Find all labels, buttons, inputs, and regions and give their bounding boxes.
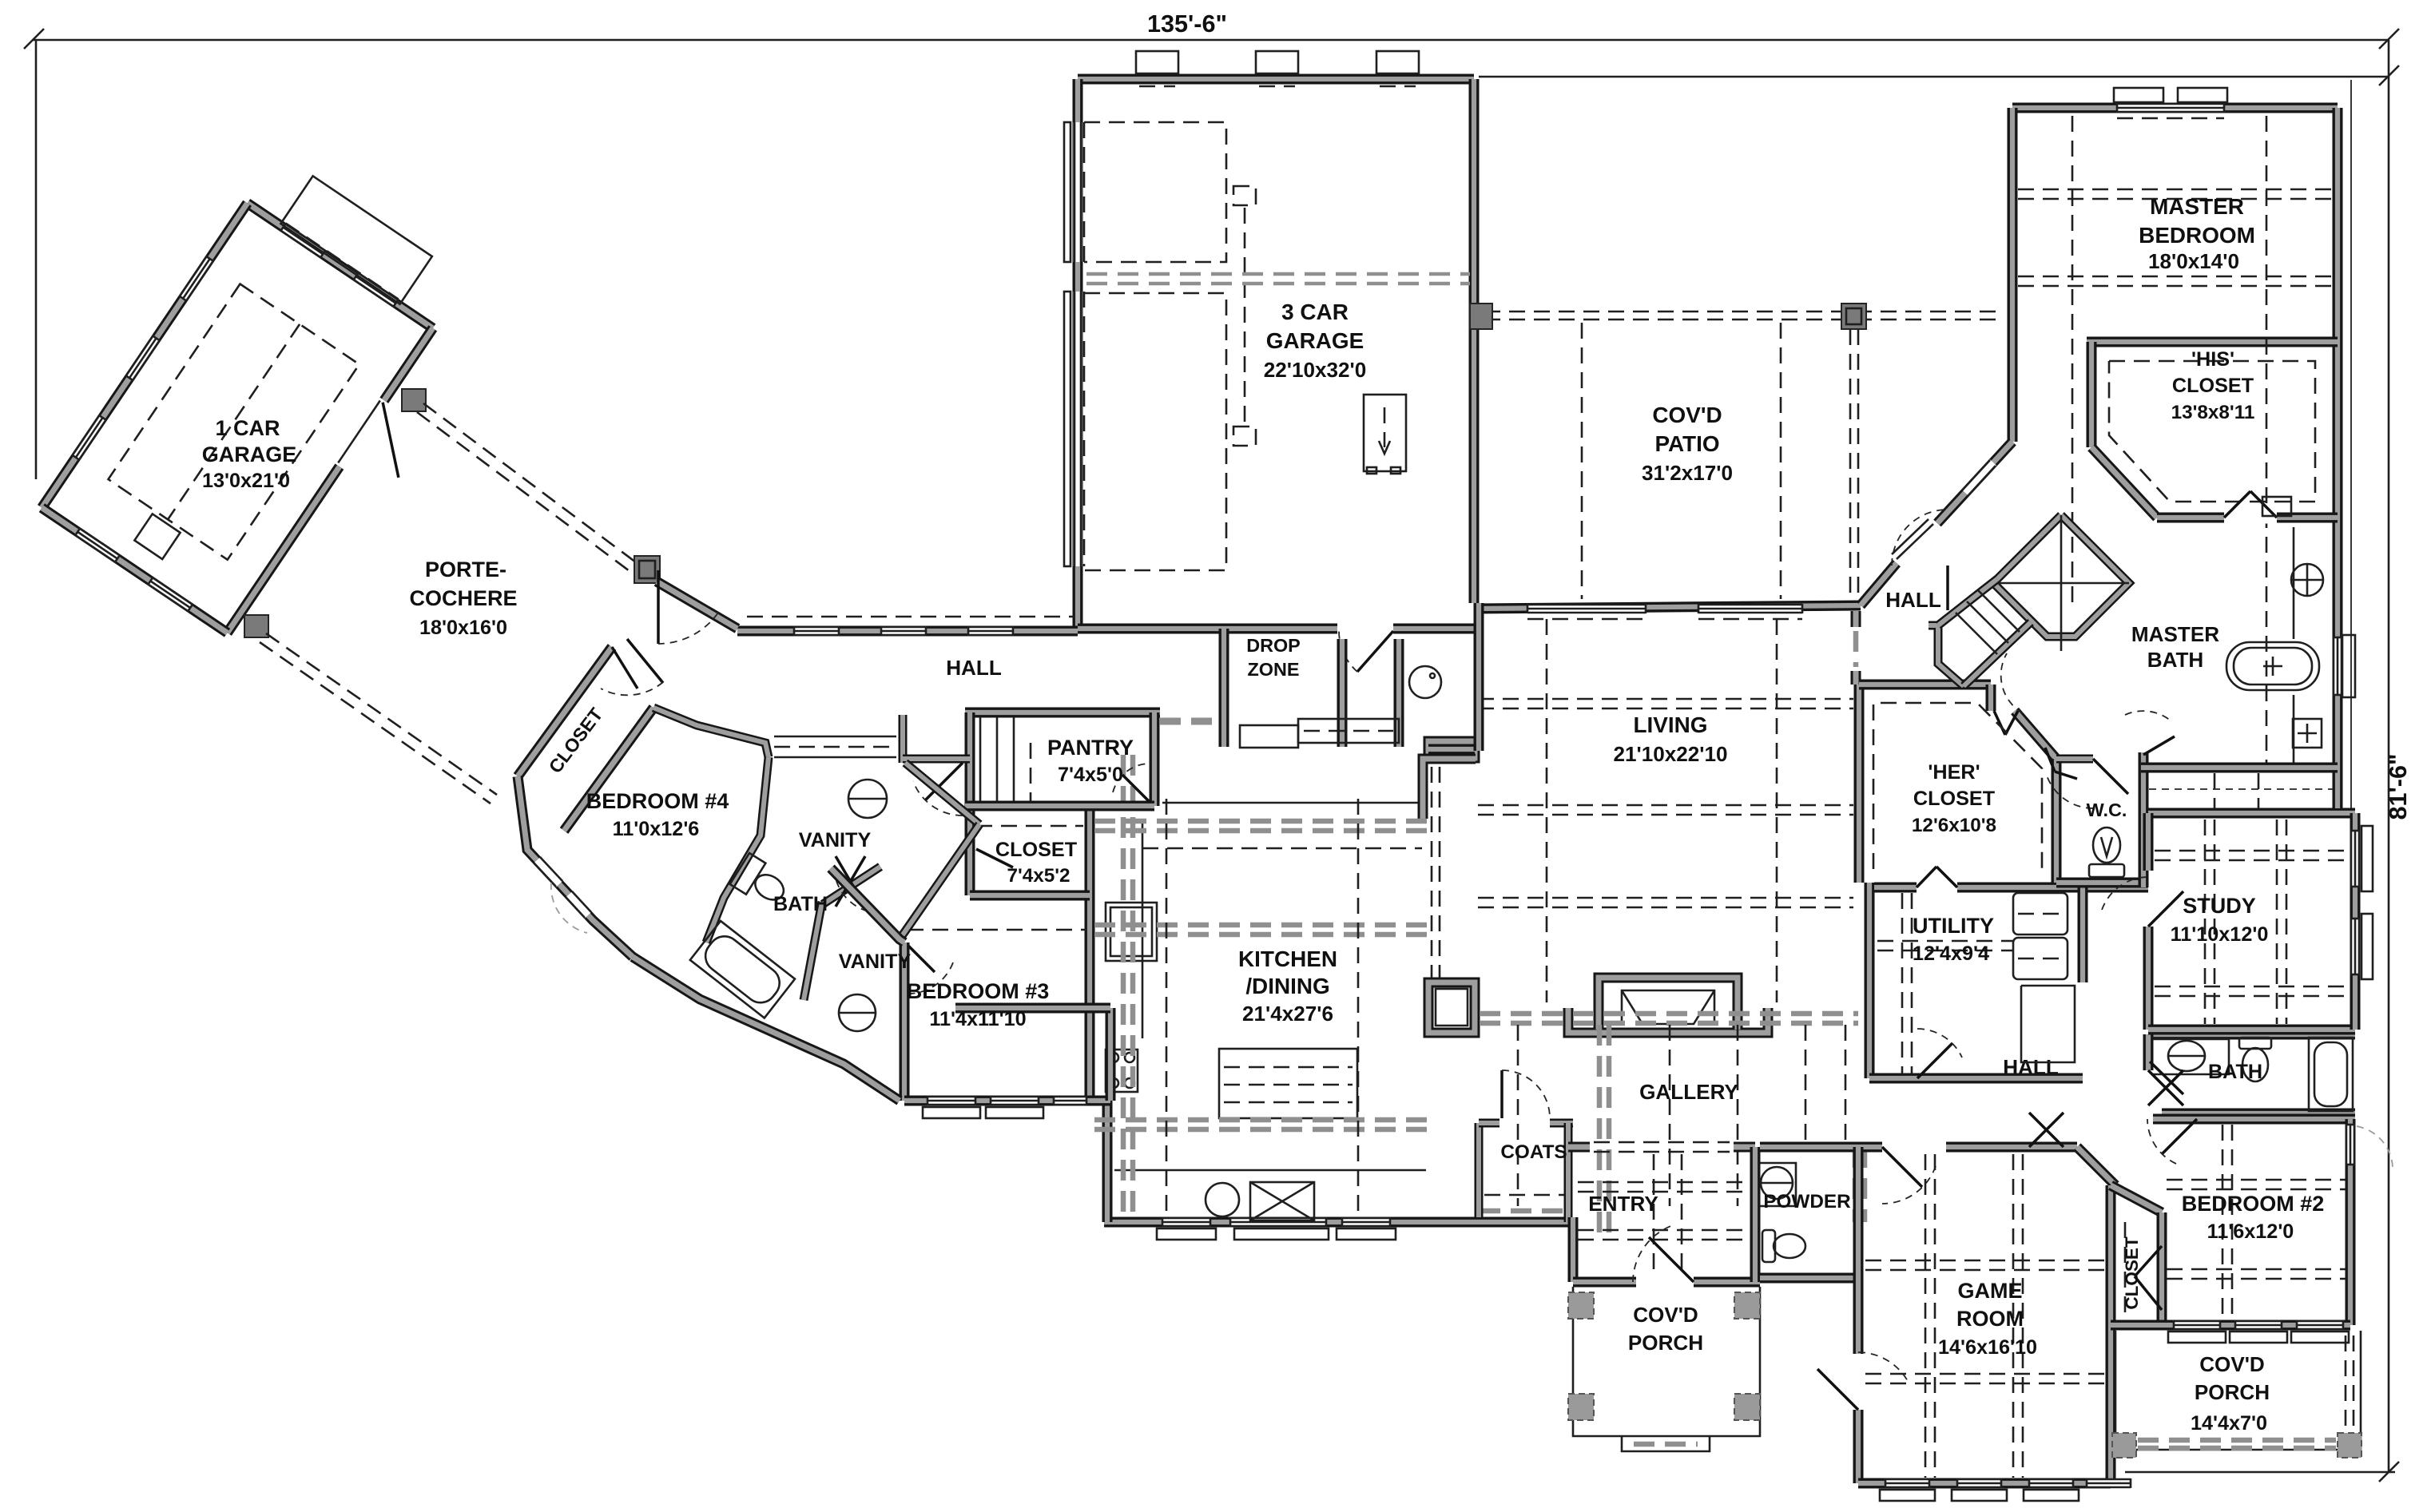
- svg-text:3 CAR: 3 CAR: [1281, 300, 1349, 324]
- svg-text:BEDROOM #3: BEDROOM #3: [907, 979, 1050, 1003]
- svg-text:21'4x27'6: 21'4x27'6: [1242, 1002, 1333, 1026]
- svg-text:'HER': 'HER': [1928, 761, 1980, 784]
- svg-text:LIVING: LIVING: [1634, 712, 1708, 737]
- svg-text:1 CAR: 1 CAR: [215, 416, 280, 440]
- svg-text:UTILITY: UTILITY: [1913, 914, 1994, 938]
- svg-text:12'4x9'4: 12'4x9'4: [1913, 943, 1989, 965]
- svg-text:CLOSET: CLOSET: [995, 839, 1078, 861]
- svg-text:7'4x5'2: 7'4x5'2: [1007, 865, 1070, 887]
- svg-text:DROP: DROP: [1246, 635, 1301, 656]
- svg-text:CLOSET: CLOSET: [2172, 375, 2254, 397]
- svg-text:/DINING: /DINING: [1245, 974, 1329, 998]
- svg-text:81'-6": 81'-6": [2385, 753, 2412, 819]
- svg-text:CLOSET: CLOSET: [2122, 1236, 2142, 1310]
- svg-text:PATIO: PATIO: [1654, 431, 1719, 456]
- svg-text:MASTER: MASTER: [2150, 194, 2244, 219]
- svg-text:COV'D: COV'D: [1633, 1303, 1698, 1327]
- svg-text:21'10x22'10: 21'10x22'10: [1613, 742, 1727, 766]
- svg-text:31'2x17'0: 31'2x17'0: [1642, 461, 1733, 485]
- svg-text:22'10x32'0: 22'10x32'0: [1264, 358, 1367, 382]
- svg-text:BEDROOM #2: BEDROOM #2: [2182, 1192, 2325, 1216]
- svg-text:GARAGE: GARAGE: [1266, 328, 1364, 353]
- svg-text:GARAGE: GARAGE: [202, 442, 297, 466]
- svg-text:13'0x21'0: 13'0x21'0: [202, 470, 290, 492]
- svg-text:'HIS': 'HIS': [2191, 348, 2234, 371]
- svg-text:7'4x5'0: 7'4x5'0: [1058, 764, 1123, 786]
- svg-text:11'6x12'0: 11'6x12'0: [2207, 1220, 2294, 1243]
- svg-text:BATH: BATH: [2208, 1061, 2262, 1083]
- svg-text:BEDROOM: BEDROOM: [2139, 223, 2255, 248]
- svg-text:PANTRY: PANTRY: [1047, 736, 1134, 760]
- svg-text:W.C.: W.C.: [2087, 800, 2127, 820]
- svg-text:PORCH: PORCH: [2195, 1380, 2270, 1404]
- svg-text:HALL: HALL: [946, 656, 1002, 680]
- svg-text:POWDER: POWDER: [1763, 1191, 1851, 1212]
- svg-text:ROOM: ROOM: [1956, 1307, 2024, 1331]
- svg-text:MASTER: MASTER: [2131, 622, 2219, 646]
- svg-text:14'6x16'10: 14'6x16'10: [1938, 1336, 2037, 1359]
- svg-text:VANITY: VANITY: [839, 950, 912, 973]
- svg-text:VANITY: VANITY: [799, 829, 872, 851]
- svg-text:BEDROOM #4: BEDROOM #4: [586, 789, 729, 813]
- svg-text:PORTE-: PORTE-: [425, 558, 506, 581]
- svg-text:HALL: HALL: [1885, 588, 1941, 612]
- svg-text:GAME: GAME: [1958, 1279, 2023, 1303]
- svg-text:COCHERE: COCHERE: [409, 586, 517, 610]
- svg-text:11'4x11'10: 11'4x11'10: [929, 1008, 1026, 1030]
- svg-text:GALLERY: GALLERY: [1639, 1080, 1738, 1104]
- svg-text:11'10x12'0: 11'10x12'0: [2171, 923, 2269, 946]
- svg-text:COV'D: COV'D: [1652, 403, 1722, 427]
- svg-text:STUDY: STUDY: [2183, 894, 2256, 918]
- svg-text:18'0x14'0: 18'0x14'0: [2148, 249, 2239, 273]
- svg-text:COV'D: COV'D: [2199, 1352, 2265, 1376]
- svg-text:BATH: BATH: [773, 893, 828, 915]
- svg-text:12'6x10'8: 12'6x10'8: [1912, 815, 1996, 836]
- svg-text:13'8x8'11: 13'8x8'11: [2171, 402, 2255, 423]
- svg-text:COATS: COATS: [1500, 1141, 1567, 1163]
- svg-text:ENTRY: ENTRY: [1588, 1192, 1658, 1216]
- svg-text:11'0x12'6: 11'0x12'6: [613, 818, 700, 840]
- svg-text:KITCHEN: KITCHEN: [1238, 946, 1337, 971]
- svg-text:14'4x7'0: 14'4x7'0: [2191, 1412, 2267, 1435]
- svg-text:PORCH: PORCH: [1628, 1331, 1703, 1355]
- svg-text:CLOSET: CLOSET: [1913, 788, 1996, 810]
- svg-text:18'0x16'0: 18'0x16'0: [419, 617, 507, 639]
- svg-text:BATH: BATH: [2147, 648, 2204, 672]
- svg-text:135'-6": 135'-6": [1147, 10, 1227, 38]
- svg-text:ZONE: ZONE: [1248, 659, 1300, 680]
